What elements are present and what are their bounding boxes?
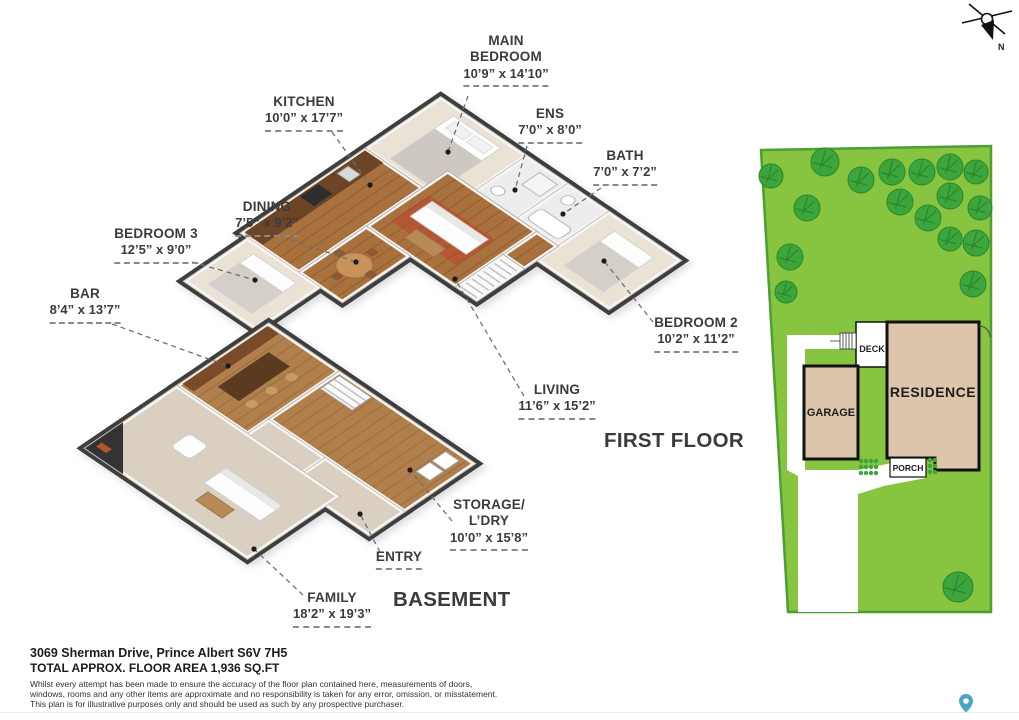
site-plan: DECK GARAGE RESIDENCE PORCH [752, 138, 1002, 620]
armchair-icon [170, 433, 210, 460]
room-name: L’DRY [450, 513, 528, 529]
room-name: BEDROOM [463, 49, 548, 65]
room-dimensions: 12’5” x 9’0” [114, 242, 198, 263]
room-label-bar: BAR8’4” x 13’7” [50, 286, 121, 324]
deck-label: DECK [859, 344, 885, 354]
tree-icon [964, 160, 988, 184]
tree-icon [915, 205, 941, 231]
room-name: MAIN [463, 33, 548, 49]
tree-icon [938, 227, 962, 251]
room-label-kitchen: KITCHEN10’0” x 17’7” [265, 94, 343, 132]
tree-icon [887, 189, 913, 215]
room-dimensions: 10’2” x 11’2” [654, 331, 738, 352]
room-label-main-bedroom: MAINBEDROOM10’9” x 14’10” [463, 33, 548, 87]
room-name: KITCHEN [265, 94, 343, 110]
room-dimensions: 10’0” x 17’7” [265, 110, 343, 131]
tree-icon [879, 159, 905, 185]
room-dimensions: 11’6” x 15’2” [518, 398, 595, 419]
room-dimensions: 7’0” x 7’2” [593, 164, 657, 185]
tree-icon [937, 183, 963, 209]
fireplace-icon [85, 422, 161, 474]
tree-icon [937, 154, 963, 180]
porch-label: PORCH [893, 463, 924, 473]
disclaimer-line: Whilst every attempt has been made to en… [30, 679, 497, 689]
disclaimer-line: This plan is for illustrative purposes o… [30, 699, 497, 709]
divider [0, 712, 1019, 713]
room-name: ENTRY [376, 549, 422, 570]
room-label-storage-ldry: STORAGE/L’DRY10’0” x 15’8” [450, 497, 528, 551]
room-label-entry: ENTRY [376, 549, 422, 570]
compass-north-label: N [998, 42, 1005, 52]
room-dimensions: 18’2” x 19’3” [293, 606, 371, 627]
tree-icon [963, 230, 989, 256]
bed-icon [208, 253, 297, 314]
room-dimensions: 8’4” x 13’7” [50, 302, 121, 323]
room-name: STORAGE/ [450, 497, 528, 513]
room-name: FAMILY [293, 590, 371, 606]
floor-plan-graphic: DECK GARAGE RESIDENCE PORCH [0, 0, 1019, 720]
tree-icon [943, 572, 973, 602]
compass-icon: N [952, 0, 1018, 60]
tree-icon [909, 159, 935, 185]
tree-icon [794, 195, 820, 221]
toilet-icon [557, 193, 578, 207]
room-label-bath: BATH7’0” x 7’2” [593, 148, 657, 186]
footer-text-block: 3069 Sherman Drive, Prince Albert S6V 7H… [30, 646, 497, 709]
room-name: BATH [593, 148, 657, 164]
room-dimensions: 10’0” x 15’8” [450, 530, 528, 551]
tree-icon [968, 196, 992, 220]
basement-plan [134, 367, 426, 544]
stool-icon [283, 371, 300, 383]
tree-icon [775, 281, 797, 303]
stool-icon [263, 385, 280, 397]
total-floor-area: TOTAL APPROX. FLOOR AREA 1,936 SQ.FT [30, 661, 497, 676]
room-label-bedroom-2: BEDROOM 210’2” x 11’2” [654, 315, 738, 353]
residence-label: RESIDENCE [890, 384, 976, 400]
room-dimensions: 10’9” x 14’10” [463, 66, 548, 87]
disclaimer-line: windows, rooms and any other items are a… [30, 689, 497, 699]
room-name: ENS [518, 106, 582, 122]
tree-icon [759, 164, 783, 188]
map-pin-icon [956, 692, 976, 716]
tree-icon [960, 271, 986, 297]
tree-icon [848, 167, 874, 193]
room-label-family: FAMILY18’2” x 19’3” [293, 590, 371, 628]
sink-icon [487, 184, 508, 198]
tree-icon [777, 244, 803, 270]
garage-label: GARAGE [807, 407, 855, 419]
room-label-bedroom-3: BEDROOM 312’5” x 9’0” [114, 226, 198, 264]
tree-icon [811, 148, 839, 176]
basement-title: BASEMENT [393, 588, 510, 612]
room-label-ens: ENS7’0” x 8’0” [518, 106, 582, 144]
property-address: 3069 Sherman Drive, Prince Albert S6V 7H… [30, 646, 497, 661]
room-name: BEDROOM 3 [114, 226, 198, 242]
room-name: BEDROOM 2 [654, 315, 738, 331]
stairs-icon [320, 375, 372, 411]
stool-icon [243, 398, 260, 410]
room-name: BAR [50, 286, 121, 302]
first-floor-title: FIRST FLOOR [604, 429, 744, 453]
bed-icon [564, 231, 655, 293]
